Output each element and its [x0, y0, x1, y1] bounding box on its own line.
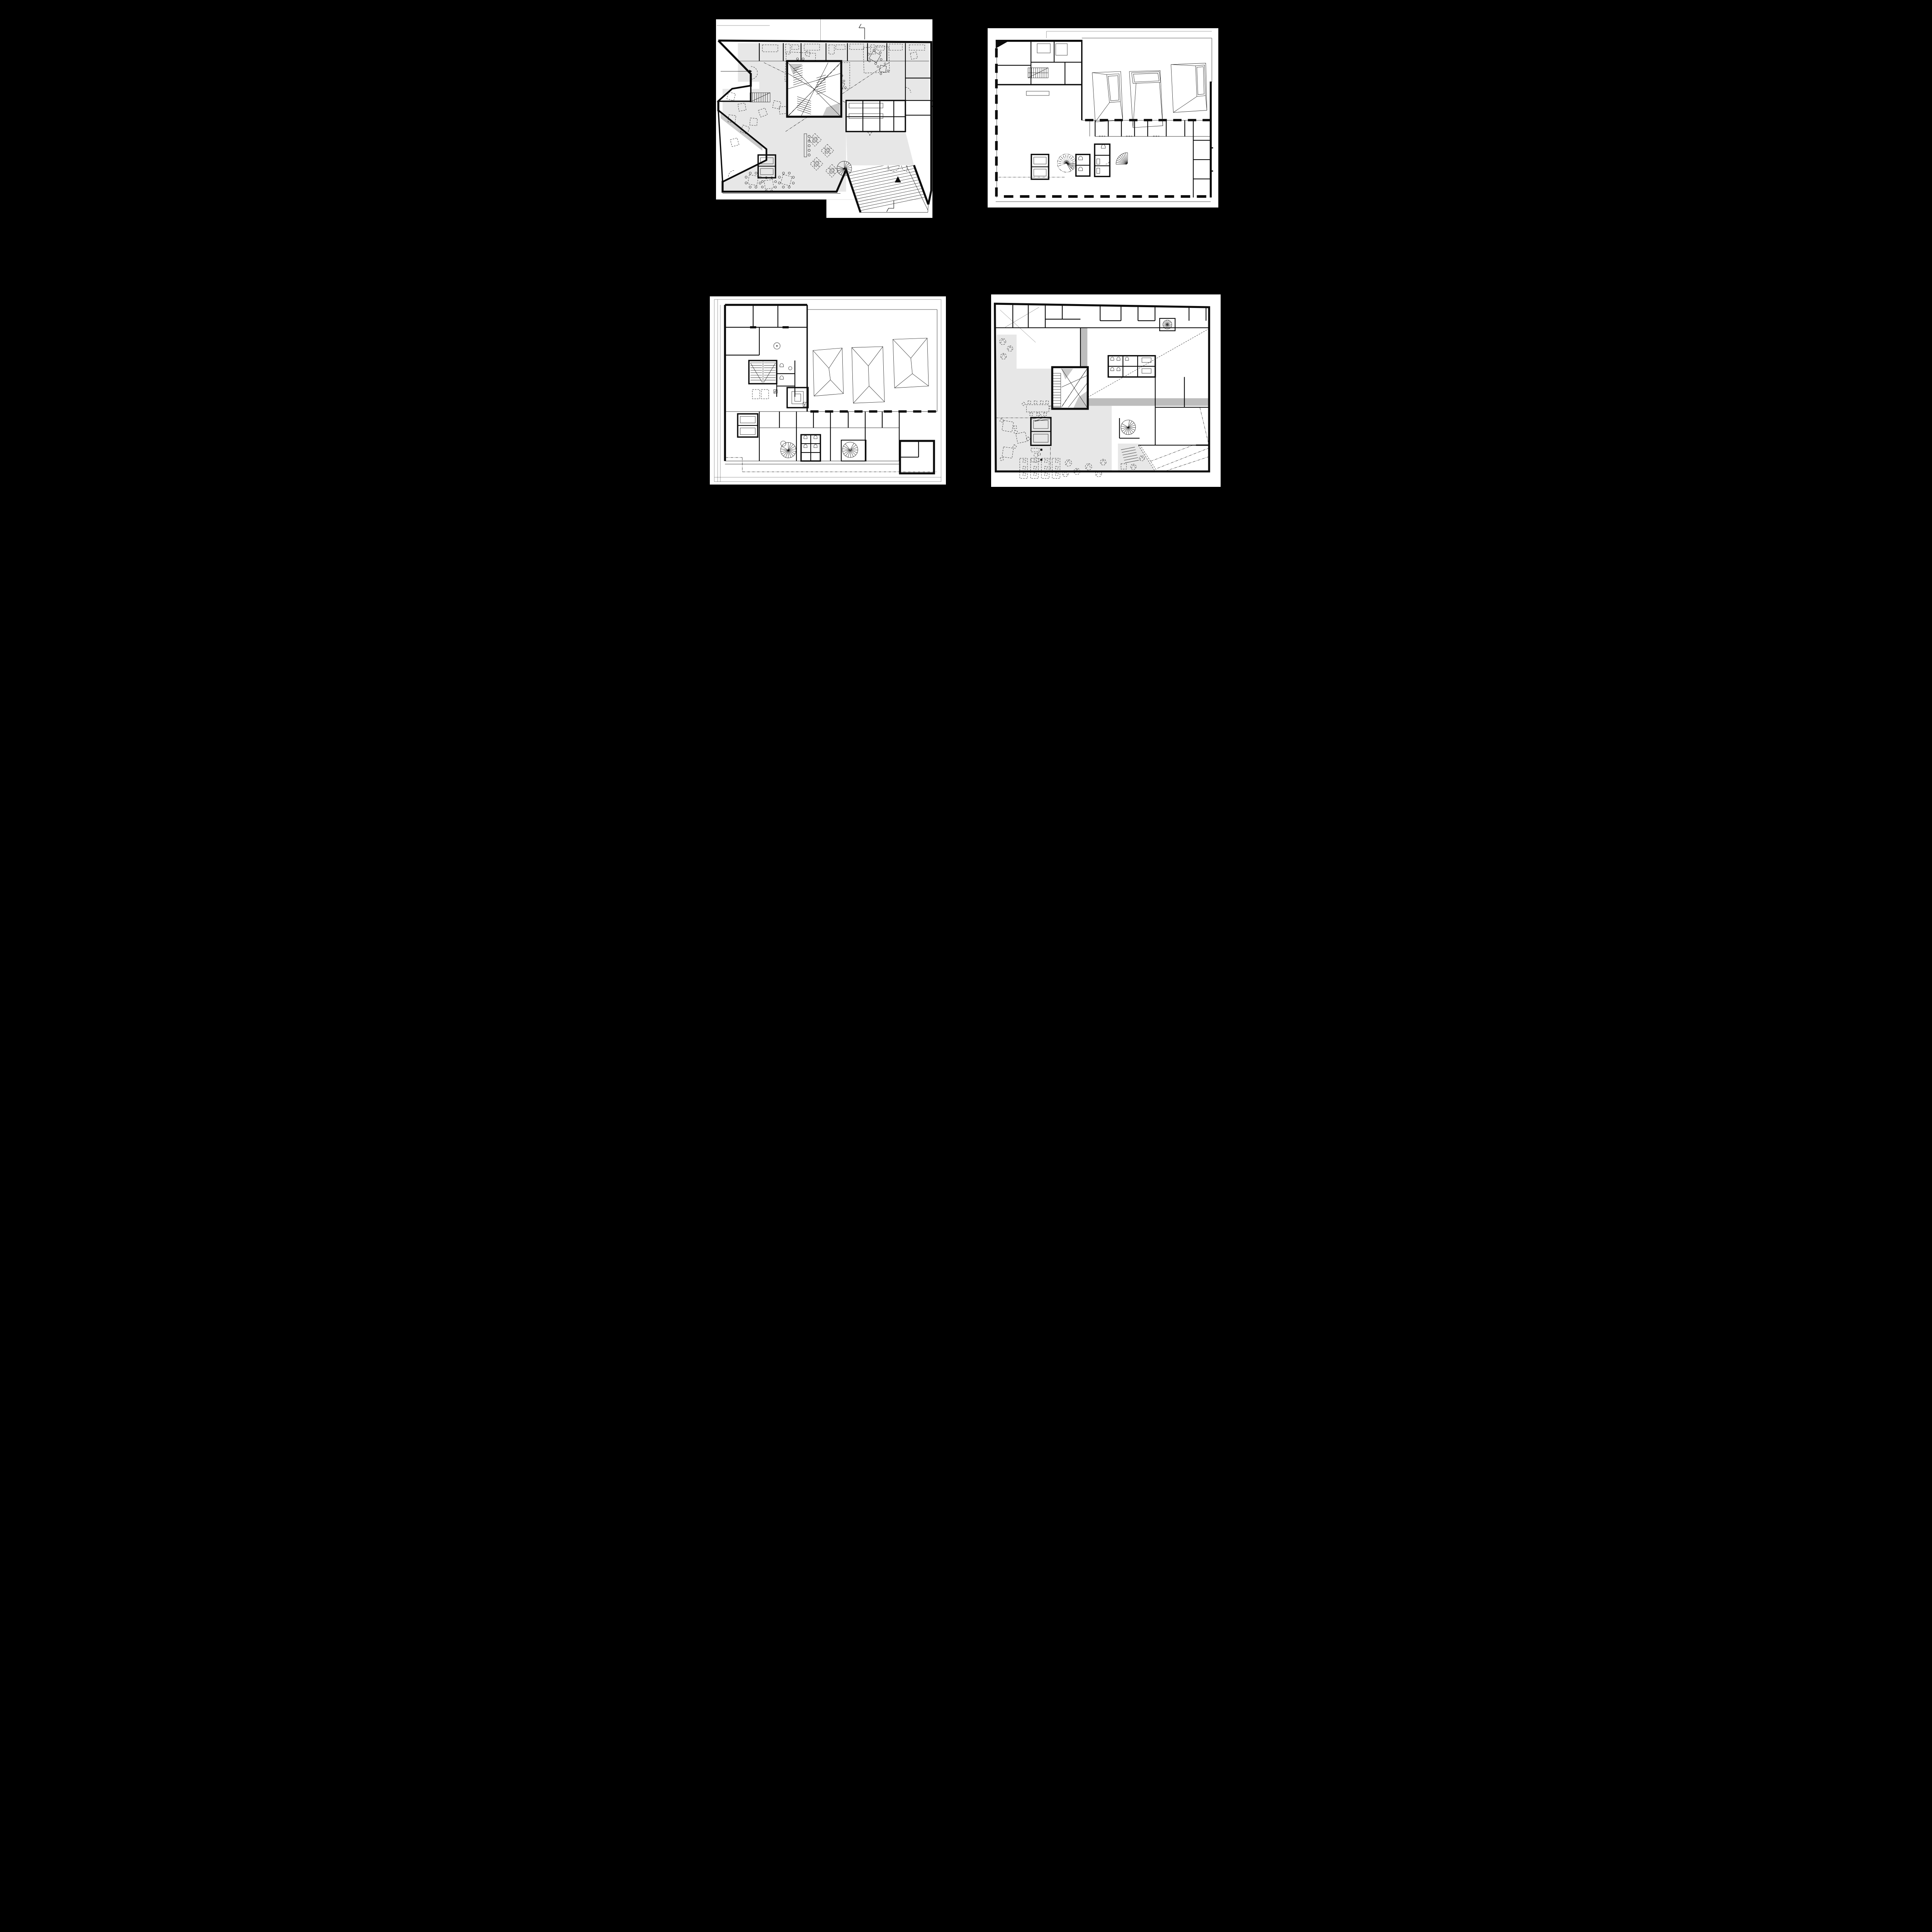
office-band: [1090, 121, 1211, 137]
skylight-funnel-3: [1171, 63, 1207, 113]
electrical-riser-bolt: [774, 389, 807, 406]
plan-sheet-canvas: [688, 0, 1244, 508]
floor-plan-1-drawing: [716, 19, 932, 218]
spiral-stair-icon: [1119, 418, 1139, 438]
scissor-stair-core: [787, 61, 841, 117]
straight-stair: [749, 361, 777, 384]
skylight-funnel-3: [893, 338, 929, 388]
south-east-room: [900, 441, 934, 473]
floor-plan-panel-3: [710, 296, 946, 485]
corner-wall: [996, 40, 1011, 48]
site-lines: [1046, 31, 1212, 38]
floor-plan-3-drawing: [710, 296, 946, 485]
spiral-stair-icon: [781, 441, 796, 458]
wc-pods: [801, 435, 820, 461]
site-boundary: [714, 299, 941, 482]
sheet-area-extension: [827, 200, 932, 218]
floor-plan-panel-4: [991, 294, 1221, 486]
roof-parapet: [1082, 38, 1212, 82]
floor-plan-4-drawing: [991, 294, 1221, 486]
scissor-stair-core: [1052, 367, 1088, 409]
south-band: [725, 412, 934, 473]
roof-parapet: [807, 310, 937, 412]
floor-plan-panel-2: [988, 28, 1218, 207]
south-facade-piers: [1004, 196, 1206, 198]
skylight-funnel-1: [813, 348, 844, 396]
spiral-stair-dashdot-icon: [1058, 154, 1076, 172]
skylight-funnel-1: [1092, 71, 1123, 122]
elevator-pair-dashed: [752, 389, 769, 399]
floor-plan-panel-1: [716, 19, 932, 218]
elevator-pair: [738, 414, 758, 437]
floor-plan-2-drawing: [988, 28, 1218, 207]
property-line: [726, 310, 937, 472]
skylight-funnel-2: [852, 347, 884, 403]
north-west-block: [996, 40, 1082, 120]
spiral-stair-2-icon: [841, 440, 866, 461]
service-counter: [1026, 91, 1049, 95]
roof-skylights: [807, 338, 937, 413]
roof-skylights: [1082, 63, 1211, 128]
bathroom-pods: [1076, 145, 1110, 177]
double-height-void: [1080, 328, 1209, 406]
north-west-block: [725, 305, 808, 408]
service-rooms: [846, 100, 905, 131]
west-facade-piers: [995, 48, 998, 197]
quarter-spiral-stair-icon: [1116, 153, 1128, 165]
elevator-pair: [1031, 155, 1049, 179]
